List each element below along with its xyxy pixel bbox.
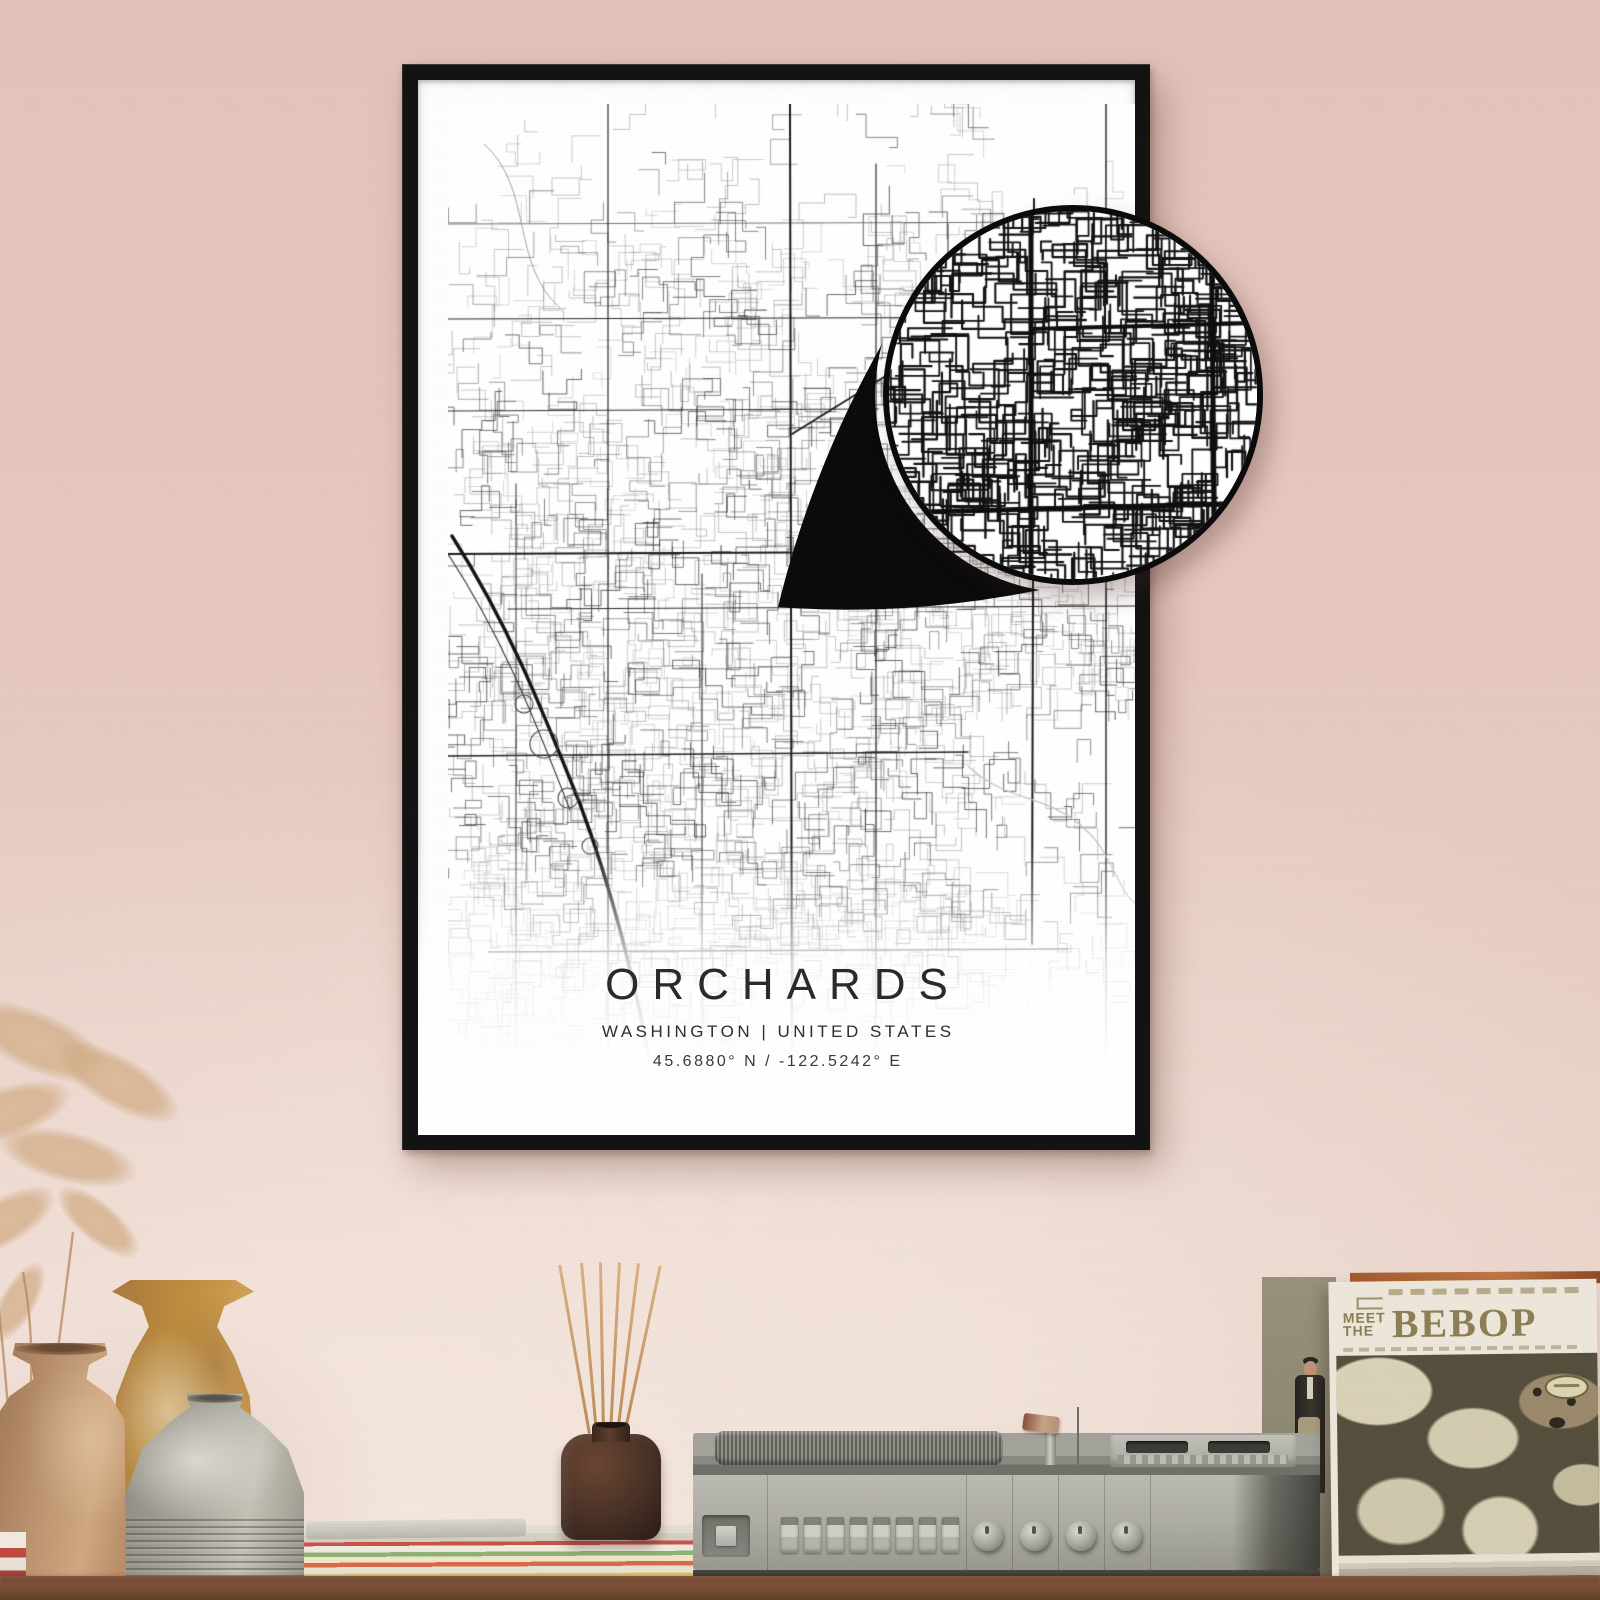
preset-button-row xyxy=(781,1517,959,1555)
panel-seam xyxy=(1058,1475,1059,1570)
album-collage-art xyxy=(1336,1353,1599,1556)
album-title-row: MEET THE BEBOP xyxy=(1339,1303,1589,1344)
panel-seam xyxy=(767,1475,768,1570)
figure-shirt xyxy=(1307,1377,1313,1399)
bottle-body xyxy=(561,1434,661,1540)
dog-eye xyxy=(1533,1387,1542,1396)
panel-seam xyxy=(1104,1475,1105,1570)
tonearm-cartridge xyxy=(1022,1413,1060,1434)
reed-diffuser-bottle xyxy=(561,1422,661,1540)
push-button xyxy=(896,1517,913,1553)
magnified-street-map xyxy=(889,211,1257,579)
antenna-rod xyxy=(1077,1407,1079,1465)
push-button xyxy=(781,1517,798,1553)
push-button xyxy=(873,1517,890,1553)
bebop-album-cover: MEET THE BEBOP xyxy=(1328,1279,1600,1578)
figure-head xyxy=(1304,1361,1317,1376)
reed-stick xyxy=(599,1262,605,1434)
tuning-knob xyxy=(1066,1521,1096,1551)
push-button xyxy=(827,1517,844,1553)
album-bottom-strip xyxy=(1339,1553,1600,1578)
turntable-platter xyxy=(715,1431,1003,1465)
record-label-badge xyxy=(1545,1375,1589,1400)
volume-knob xyxy=(973,1521,1003,1551)
album-title: BEBOP xyxy=(1392,1303,1538,1343)
control-deck xyxy=(1110,1435,1296,1467)
album-pretitle: MEET THE xyxy=(1343,1311,1386,1338)
player-front-panel xyxy=(693,1475,1320,1570)
table-edge-shadow xyxy=(0,1576,1600,1582)
deck-slot xyxy=(1208,1441,1270,1453)
push-button xyxy=(942,1517,959,1553)
poster-title: ORCHARDS xyxy=(418,960,1135,1010)
diffuser-reeds xyxy=(588,1258,648,1434)
dog-nose xyxy=(1549,1417,1565,1428)
selector-knob xyxy=(1112,1521,1142,1551)
poster-caption-block: ORCHARDS WASHINGTON | UNITED STATES 45.6… xyxy=(418,960,1135,1071)
magazine-top-book xyxy=(306,1518,526,1539)
panel-seam xyxy=(1150,1475,1151,1570)
record-player xyxy=(693,1405,1320,1592)
deck-slot xyxy=(1126,1441,1188,1453)
room-scene: ORCHARDS WASHINGTON | UNITED STATES 45.6… xyxy=(0,0,1600,1600)
deck-key-row xyxy=(1118,1455,1288,1464)
map-zoom-magnifier xyxy=(883,205,1263,585)
panel-seam xyxy=(1012,1475,1013,1570)
power-button xyxy=(702,1515,750,1557)
album-top-text-row xyxy=(1388,1287,1578,1295)
push-button xyxy=(850,1517,867,1553)
poster-subtitle: WASHINGTON | UNITED STATES xyxy=(418,1022,1135,1042)
power-key xyxy=(716,1526,736,1546)
poster-coordinates: 45.6880° N / -122.5242° E xyxy=(418,1053,1135,1071)
album-subtitle-row xyxy=(1343,1345,1583,1352)
tone-knob xyxy=(1020,1521,1050,1551)
push-button xyxy=(804,1517,821,1553)
bottle-neck xyxy=(592,1422,630,1442)
album-pretitle-line2: THE xyxy=(1343,1324,1386,1338)
push-button xyxy=(919,1517,936,1553)
panel-shadow-end xyxy=(1232,1475,1320,1570)
panel-seam xyxy=(966,1475,967,1570)
reed-stick xyxy=(558,1264,591,1434)
